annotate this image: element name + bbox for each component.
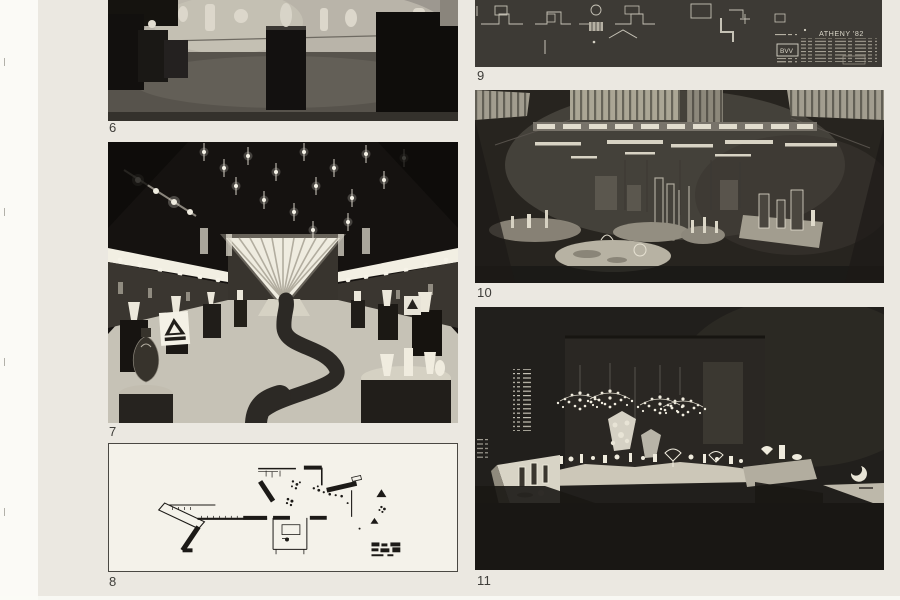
plan-legend-block: [371, 542, 400, 556]
figure-6-caption: 6: [109, 121, 117, 134]
light-rail: [533, 122, 817, 131]
plan-project-title: ATHENY '82: [819, 29, 864, 38]
figure-7-photo: [108, 142, 458, 423]
figure-8-caption: 8: [109, 575, 117, 588]
exhibitor-logo-sign: [159, 311, 190, 346]
photo-11-image: [475, 307, 884, 570]
catalogue-page: 6: [0, 0, 900, 600]
figure-10-photo: [475, 90, 884, 283]
plan-8-drawing: [109, 444, 457, 571]
figure-11-caption: 11: [477, 574, 491, 587]
exhibitor-logo-sign-right: [404, 296, 421, 315]
photo-6-image: [108, 0, 458, 121]
figure-10-caption: 10: [477, 286, 492, 299]
plan-org-label: BVV: [780, 48, 794, 55]
scan-margin-strip: [0, 0, 38, 600]
figure-6-photo: [108, 0, 458, 121]
figure-9-plan: ATHENY '82 BVV: [475, 0, 882, 67]
figure-9-caption: 9: [477, 69, 485, 82]
figure-8-plan-panel: [108, 443, 458, 572]
photo-7-image: [108, 142, 458, 423]
plan-9-drawing: ATHENY '82 BVV: [475, 0, 882, 67]
photo-10-image: [475, 90, 884, 283]
scan-edge-line: [4, 0, 5, 600]
page-bottom-edge: [0, 596, 900, 600]
figure-7-caption: 7: [109, 425, 117, 438]
figure-11-photo: [475, 307, 884, 570]
